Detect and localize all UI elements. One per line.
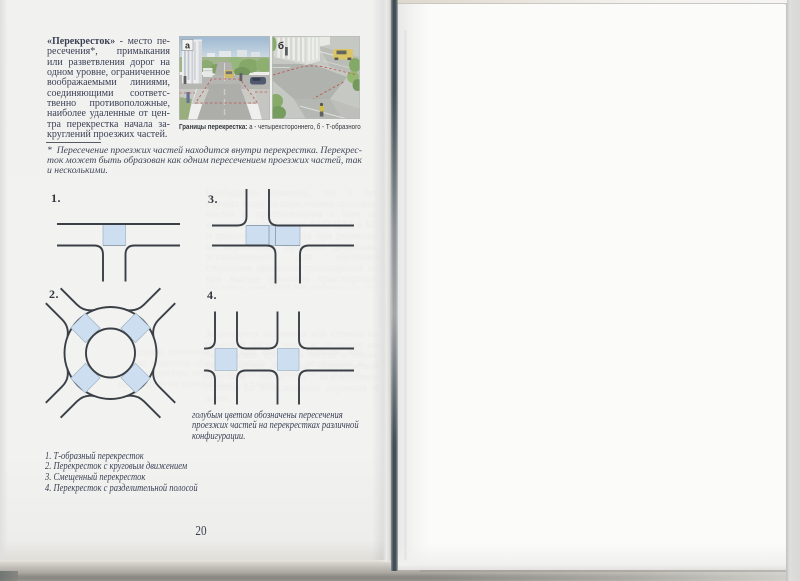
- svg-text:б: б: [278, 40, 284, 52]
